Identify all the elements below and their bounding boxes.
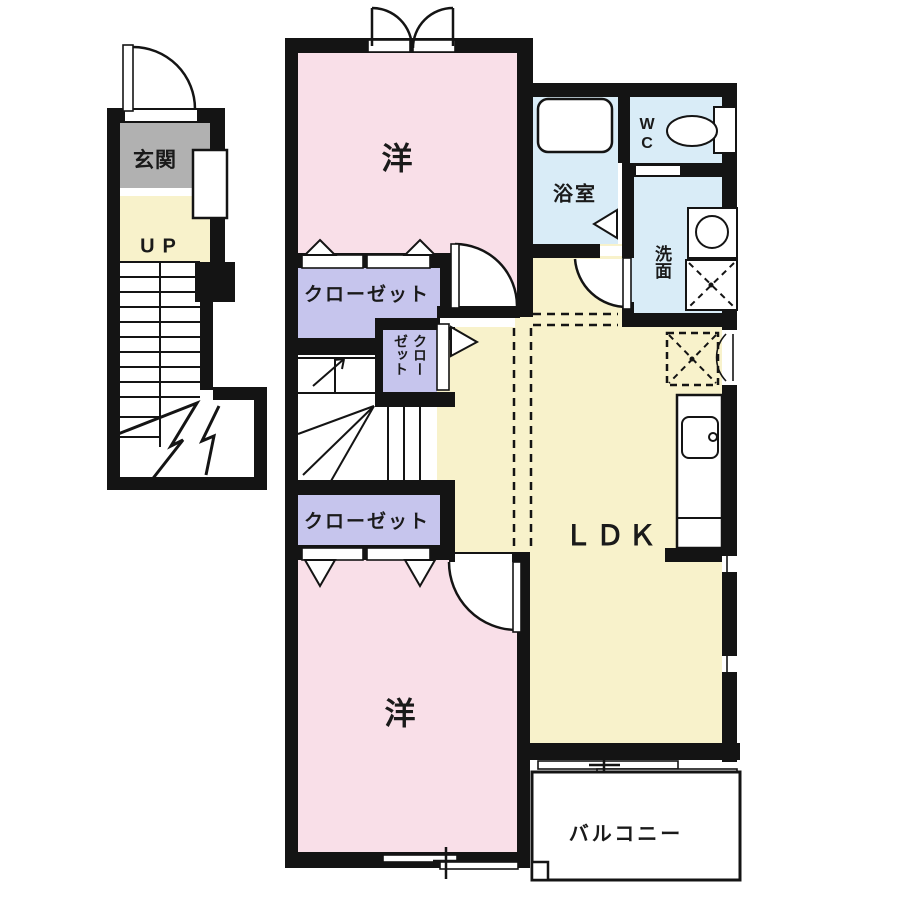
casement-window-top xyxy=(368,8,455,52)
shoe-cabinet xyxy=(193,150,227,218)
wash-basin xyxy=(688,208,737,258)
bathroom-door-opening xyxy=(600,246,622,256)
closet-bottom-floor xyxy=(298,495,440,545)
entrance-door-arc xyxy=(123,45,195,111)
slit-window-lower xyxy=(722,656,737,672)
washroom-door-opening xyxy=(636,166,680,175)
floor-plan-drawing xyxy=(0,0,900,900)
faucet xyxy=(709,433,717,441)
balcony xyxy=(532,772,740,880)
top-room-threshold xyxy=(440,318,515,327)
entrance-opening xyxy=(125,110,197,121)
balcony-partition xyxy=(532,862,548,880)
exterior-stairs-lower-area xyxy=(120,400,254,477)
bottom-room-threshold xyxy=(455,554,512,562)
floor-plan: 玄関 UP 洋 クローゼット クローゼット 浴室 WC 洗面 ＬＤＫ クローゼッ… xyxy=(0,0,900,900)
washing-machine-pan xyxy=(686,260,737,310)
kitchen-counter xyxy=(677,395,722,548)
slit-window-upper xyxy=(722,556,737,572)
bathtub xyxy=(538,99,612,152)
closet-small-floor xyxy=(383,328,437,393)
entry-step-edge xyxy=(120,188,193,196)
